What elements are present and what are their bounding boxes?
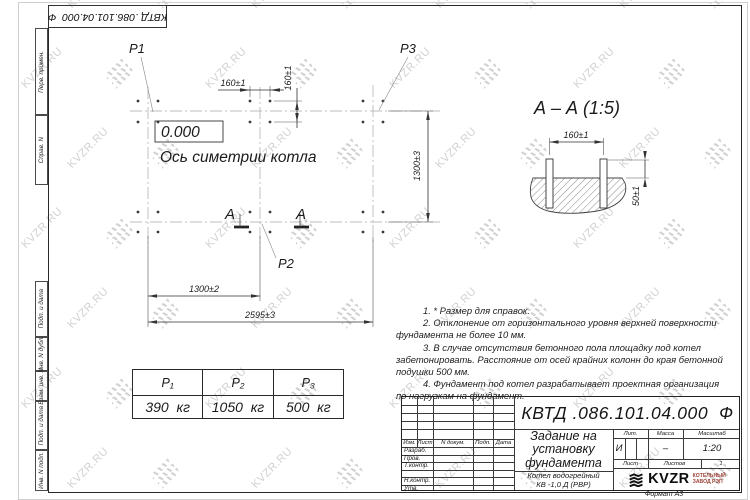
role-nkontr: Н.контр. — [402, 477, 435, 485]
load-table-value-p2: 1050 кг — [203, 396, 273, 419]
role-razrab: Разраб. — [402, 447, 435, 455]
title-block: Изм. Лист N докум. Подп. Дата Разраб. Пр… — [401, 396, 740, 491]
elevation-value: 0.000 — [161, 124, 200, 141]
section-bolt-left — [546, 159, 553, 208]
mass-value: – — [648, 438, 683, 459]
scale-header: Масштаб — [683, 429, 740, 438]
load-table-value-p1: 390 кг — [133, 396, 203, 419]
dim-bolt-spacing-h: 160±1 — [221, 78, 246, 88]
load-label-p2: P2 — [278, 256, 295, 271]
section-view-title: А – А (1:5) — [533, 98, 620, 118]
company-logo-cell: KVZR КОТЕЛЬНЫЙ ЗАВОД РЭП — [613, 468, 740, 490]
note-line: подушки 500 мм. — [396, 366, 732, 378]
section-bolt-right — [600, 159, 607, 208]
technical-notes: 1. * Размер для справок. 2. Отклонение о… — [396, 305, 732, 403]
rev-col-podp: Подп. — [473, 439, 493, 447]
lit-value: И — [613, 438, 625, 459]
dim-plan-width: 1300±3 — [412, 151, 422, 181]
section-letter-left: А — [224, 206, 235, 223]
lit-header: Лит. — [613, 429, 648, 438]
note-line: 2. Отклонение от горизонтального уровня … — [396, 317, 732, 329]
product-name: Котел водогрейный КВ -1,0 Д (РВР) — [514, 471, 613, 490]
section-cut-ticks — [240, 214, 300, 227]
load-table: P₁ P₂ P₃ 390 кг 1050 кг 500 кг — [132, 369, 344, 419]
rev-col-list: Лист — [417, 439, 433, 447]
note-line: забетонировать. Расстояние от осей крайн… — [396, 354, 732, 366]
mass-header: Масса — [648, 429, 683, 438]
company-name: КОТЕЛЬНЫЙ ЗАВОД РЭП — [693, 473, 726, 485]
load-label-p1: P1 — [129, 41, 145, 56]
note-line: 1. * Размер для справок. — [396, 305, 732, 317]
dim-section-protrusion: 50±1 — [631, 186, 641, 206]
role-tkontr: Т.контр. — [402, 462, 435, 470]
load-label-p3: P3 — [400, 41, 417, 56]
boiler-axis-label: Ось симетрии котла — [160, 149, 317, 166]
note-line: фундамента не более 10 мм. — [396, 329, 732, 341]
title-block-designation: КВТД .086.101.04.000 Ф — [514, 397, 740, 429]
load-table-value-row: 390 кг 1050 кг 500 кг — [133, 396, 344, 419]
rev-col-data: Дата — [493, 439, 514, 447]
note-line: 4. Фундамент под котел разрабатывает про… — [396, 378, 732, 390]
load-table-header-p3: P₃ — [273, 370, 343, 396]
kvzr-logo-text: KVZR — [648, 471, 689, 487]
section-foundation-hatch — [530, 178, 625, 213]
note-line: 3. В случае отсутствия бетонного пола пл… — [396, 342, 732, 354]
role-prov: Пров. — [402, 455, 435, 463]
load-table-header-p2: P₂ — [203, 370, 273, 396]
section-letter-right: А — [295, 206, 306, 223]
format-label: Формат А3 — [600, 491, 728, 498]
dim-plan-total-length: 2595±3 — [244, 310, 275, 320]
document-title: Задание на установку фундамента — [514, 429, 613, 471]
rev-col-izm: Изм. — [402, 439, 417, 447]
dim-section-bolts: 160±1 — [564, 130, 589, 140]
load-table-header-p1: P₁ — [133, 370, 203, 396]
sheets-value: 1 — [701, 459, 740, 468]
rev-col-ndokum: N докум. — [433, 439, 473, 447]
kvzr-coil-icon — [628, 472, 645, 487]
dim-plan-half-length: 1300±2 — [189, 284, 219, 294]
drawing-sheet: KVZR.RUKVZR.RUKVZR.RUKVZR.RUKVZR.RUKVZR.… — [0, 0, 750, 500]
load-table-header-row: P₁ P₂ P₃ — [133, 370, 344, 396]
load-table-value-p3: 500 кг — [273, 396, 343, 419]
scale-value: 1:20 — [683, 438, 740, 459]
anchor-bolt-dots — [137, 100, 385, 234]
dim-bolt-spacing-v: 160±1 — [283, 66, 293, 91]
sheets-label: Листов — [648, 459, 701, 468]
role-utv: Утв. — [402, 485, 435, 492]
sheet-label: Лист — [613, 459, 648, 468]
